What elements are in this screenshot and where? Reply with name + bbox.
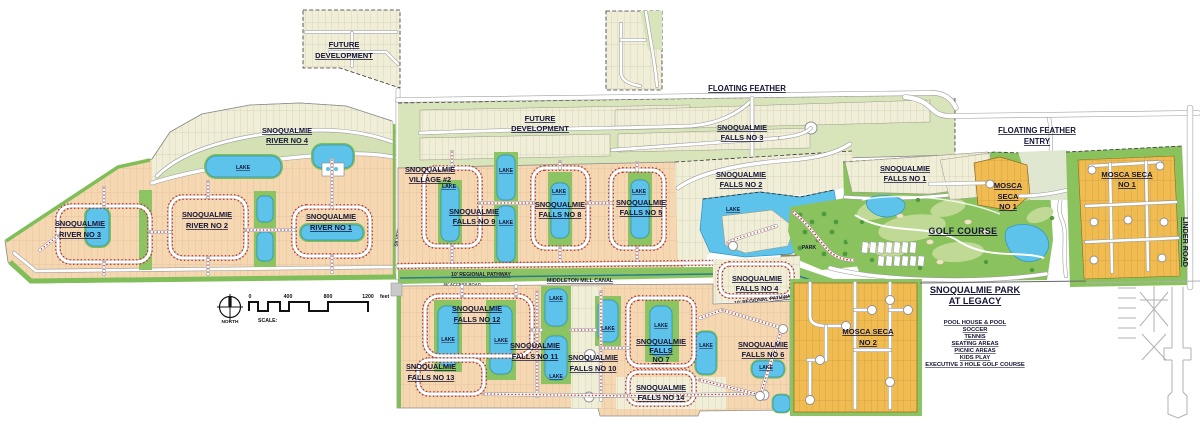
svg-text:SNOQUALMIE: SNOQUALMIE <box>449 207 499 216</box>
svg-text:GOLF COURSE: GOLF COURSE <box>929 226 998 236</box>
svg-text:LAKE: LAKE <box>654 323 668 329</box>
svg-text:SNOQUALMIE: SNOQUALMIE <box>716 170 766 179</box>
svg-text:FLOATING FEATHER: FLOATING FEATHER <box>708 84 786 93</box>
svg-text:FALLS NO 6: FALLS NO 6 <box>742 350 785 359</box>
svg-text:SNOQUALMIE: SNOQUALMIE <box>636 337 686 346</box>
svg-text:SNOQUALMIE: SNOQUALMIE <box>452 304 502 313</box>
svg-text:LAKE: LAKE <box>726 207 741 213</box>
svg-text:ENTRY: ENTRY <box>1024 137 1051 146</box>
svg-text:FALLS NO 8: FALLS NO 8 <box>539 210 582 219</box>
svg-text:SNOQUALMIE: SNOQUALMIE <box>262 126 312 135</box>
svg-text:MOSCA SECA: MOSCA SECA <box>842 327 894 336</box>
svg-text:FALLS NO 9: FALLS NO 9 <box>453 217 496 226</box>
svg-text:SNOQUALMIE: SNOQUALMIE <box>406 362 456 371</box>
svg-text:1200: 1200 <box>362 294 374 300</box>
svg-text:NO 1: NO 1 <box>1118 180 1137 189</box>
svg-text:TENNIS: TENNIS <box>964 334 985 340</box>
svg-text:SNOQUALMIE: SNOQUALMIE <box>732 274 782 283</box>
svg-text:LAKE: LAKE <box>499 220 514 226</box>
svg-text:LAKE: LAKE <box>759 365 773 371</box>
svg-text:feet: feet <box>380 294 389 300</box>
svg-text:LAKE: LAKE <box>494 338 508 344</box>
svg-text:RIVER NO 4: RIVER NO 4 <box>266 136 309 145</box>
svg-text:SNOQUALMIE: SNOQUALMIE <box>55 219 105 228</box>
svg-text:SNOQUALMIE: SNOQUALMIE <box>738 340 788 349</box>
svg-text:LAKE: LAKE <box>699 343 713 349</box>
svg-text:SOCCER: SOCCER <box>963 327 989 333</box>
svg-text:LAKE: LAKE <box>499 168 514 174</box>
svg-text:FALLS NO 14: FALLS NO 14 <box>638 393 686 402</box>
svg-text:SNOQUALMIE: SNOQUALMIE <box>510 341 560 350</box>
svg-text:KIDS PLAY: KIDS PLAY <box>960 355 991 361</box>
svg-text:FALLS NO 3: FALLS NO 3 <box>721 133 764 142</box>
svg-text:SECA: SECA <box>997 192 1019 201</box>
svg-text:RIVER NO 2: RIVER NO 2 <box>186 221 228 230</box>
svg-text:10' REGIONAL PATHWAY: 10' REGIONAL PATHWAY <box>451 272 511 278</box>
svg-text:0: 0 <box>249 294 252 300</box>
svg-text:SNOQUALMIE PARK: SNOQUALMIE PARK <box>930 285 1021 295</box>
svg-text:FUTURE: FUTURE <box>329 40 360 49</box>
svg-text:FALLS NO 1: FALLS NO 1 <box>884 174 927 183</box>
svg-text:NORTH: NORTH <box>221 319 239 325</box>
svg-text:LAKE: LAKE <box>552 189 567 195</box>
svg-text:AT LEGACY: AT LEGACY <box>949 296 1001 306</box>
svg-text:MOSCA: MOSCA <box>994 181 1023 190</box>
svg-text:DEVELOPMENT: DEVELOPMENT <box>315 51 373 60</box>
svg-text:SNOQUALMIE: SNOQUALMIE <box>405 165 455 174</box>
svg-text:SNOQUALMIE: SNOQUALMIE <box>636 383 686 392</box>
svg-text:DEVELOPMENT: DEVELOPMENT <box>511 124 569 133</box>
svg-text:FLOATING FEATHER: FLOATING FEATHER <box>998 126 1076 135</box>
svg-text:FALLS NO 4: FALLS NO 4 <box>736 284 780 293</box>
svg-text:FALLS NO 13: FALLS NO 13 <box>408 373 455 382</box>
svg-text:NO 7: NO 7 <box>652 355 669 364</box>
svg-text:SEATING AREAS: SEATING AREAS <box>951 341 998 347</box>
svg-text:PARK: PARK <box>802 245 817 251</box>
svg-text:VILLAGE #2: VILLAGE #2 <box>409 175 451 184</box>
svg-text:SNOQUALMIE: SNOQUALMIE <box>880 164 930 173</box>
svg-text:SNOQUALMIE: SNOQUALMIE <box>306 212 356 221</box>
svg-text:400: 400 <box>284 294 293 300</box>
svg-text:LAKE: LAKE <box>549 374 563 380</box>
svg-text:SNOQUALMIE: SNOQUALMIE <box>568 353 618 362</box>
svg-text:SNOQUALMIE: SNOQUALMIE <box>182 210 232 219</box>
svg-text:FALLS NO 10: FALLS NO 10 <box>570 364 617 373</box>
svg-text:SNOQUALMIE: SNOQUALMIE <box>535 200 585 209</box>
svg-text:RIVER NO 1: RIVER NO 1 <box>310 223 352 232</box>
svg-text:PICNIC AREAS: PICNIC AREAS <box>954 348 995 354</box>
svg-text:FUTURE: FUTURE <box>525 114 556 123</box>
svg-text:800: 800 <box>324 294 333 300</box>
svg-text:FALLS NO 2: FALLS NO 2 <box>720 180 763 189</box>
svg-text:NO 1: NO 1 <box>999 202 1018 211</box>
svg-text:MOSCA SECA: MOSCA SECA <box>1101 170 1153 179</box>
svg-text:SNOQUALMIE: SNOQUALMIE <box>717 123 767 132</box>
svg-text:FALLS NO 5: FALLS NO 5 <box>620 208 663 217</box>
svg-text:MIDDLETON MILL CANAL: MIDDLETON MILL CANAL <box>547 278 614 284</box>
svg-text:LINDER ROAD: LINDER ROAD <box>1181 217 1190 267</box>
svg-text:FALLS NO 11: FALLS NO 11 <box>512 352 558 361</box>
svg-text:LAKE: LAKE <box>442 184 457 190</box>
svg-text:LAKE: LAKE <box>441 337 455 343</box>
svg-text:LAKE: LAKE <box>549 296 563 302</box>
svg-text:NO 2: NO 2 <box>859 338 877 347</box>
svg-text:LAKE: LAKE <box>236 165 251 171</box>
svg-text:SNOQUALMIE: SNOQUALMIE <box>616 198 666 207</box>
svg-text:EXECUTIVE 3 HOLE GOLF COURSE: EXECUTIVE 3 HOLE GOLF COURSE <box>925 362 1025 368</box>
svg-text:RIVER NO 3: RIVER NO 3 <box>59 230 101 239</box>
svg-text:LAKE: LAKE <box>601 326 615 332</box>
svg-text:LAKE: LAKE <box>632 189 647 195</box>
svg-text:FALLS NO 12: FALLS NO 12 <box>454 315 501 324</box>
svg-text:SCALE:: SCALE: <box>258 318 278 324</box>
svg-text:FALLS: FALLS <box>649 346 672 355</box>
svg-text:POOL HOUSE & POOL: POOL HOUSE & POOL <box>944 320 1007 326</box>
